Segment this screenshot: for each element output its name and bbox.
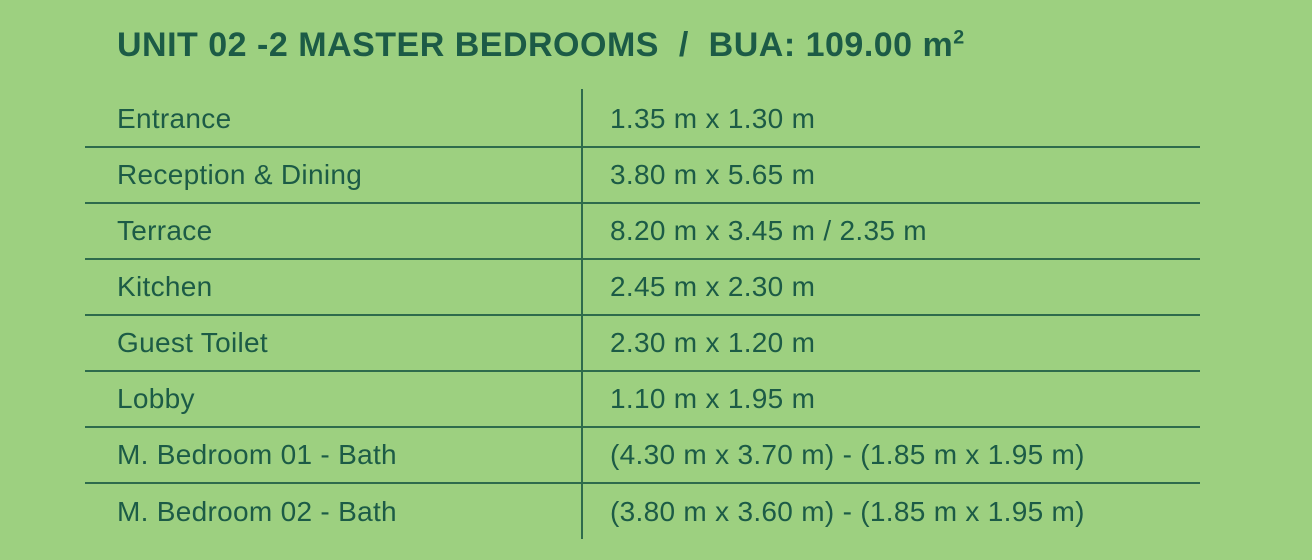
room-name: M. Bedroom 02 - Bath bbox=[85, 496, 581, 528]
page-title-text: UNIT 02 -2 MASTER BEDROOMS / BUA: 109.00… bbox=[117, 26, 953, 64]
room-dimensions: 2.45 m x 2.30 m bbox=[581, 271, 1200, 303]
room-dimensions: 1.35 m x 1.30 m bbox=[581, 103, 1200, 135]
room-name: Reception & Dining bbox=[85, 159, 581, 191]
room-dimensions: 8.20 m x 3.45 m / 2.35 m bbox=[581, 215, 1200, 247]
room-dimensions: 1.10 m x 1.95 m bbox=[581, 383, 1200, 415]
table-row: Terrace 8.20 m x 3.45 m / 2.35 m bbox=[85, 204, 1200, 260]
room-dimensions: (4.30 m x 3.70 m) - (1.85 m x 1.95 m) bbox=[581, 439, 1200, 471]
table-row: M. Bedroom 01 - Bath (4.30 m x 3.70 m) -… bbox=[85, 428, 1200, 484]
table-row: Lobby 1.10 m x 1.95 m bbox=[85, 372, 1200, 428]
room-name: Lobby bbox=[85, 383, 581, 415]
room-name: Entrance bbox=[85, 103, 581, 135]
unit-spec-sheet: UNIT 02 -2 MASTER BEDROOMS / BUA: 109.00… bbox=[0, 0, 1312, 560]
room-name: Terrace bbox=[85, 215, 581, 247]
table-row: M. Bedroom 02 - Bath (3.80 m x 3.60 m) -… bbox=[85, 484, 1200, 540]
page-title: UNIT 02 -2 MASTER BEDROOMS / BUA: 109.00… bbox=[117, 26, 965, 65]
room-name: Guest Toilet bbox=[85, 327, 581, 359]
table-row: Entrance 1.35 m x 1.30 m bbox=[85, 92, 1200, 148]
table-row: Guest Toilet 2.30 m x 1.20 m bbox=[85, 316, 1200, 372]
room-dimensions: 3.80 m x 5.65 m bbox=[581, 159, 1200, 191]
square-meter-superscript: 2 bbox=[953, 27, 964, 49]
table-row: Reception & Dining 3.80 m x 5.65 m bbox=[85, 148, 1200, 204]
table-row: Kitchen 2.45 m x 2.30 m bbox=[85, 260, 1200, 316]
room-dimensions: 2.30 m x 1.20 m bbox=[581, 327, 1200, 359]
room-name: M. Bedroom 01 - Bath bbox=[85, 439, 581, 471]
room-dimensions: (3.80 m x 3.60 m) - (1.85 m x 1.95 m) bbox=[581, 496, 1200, 528]
dimensions-table: Entrance 1.35 m x 1.30 m Reception & Din… bbox=[85, 92, 1200, 540]
room-name: Kitchen bbox=[85, 271, 581, 303]
column-divider bbox=[581, 89, 583, 539]
